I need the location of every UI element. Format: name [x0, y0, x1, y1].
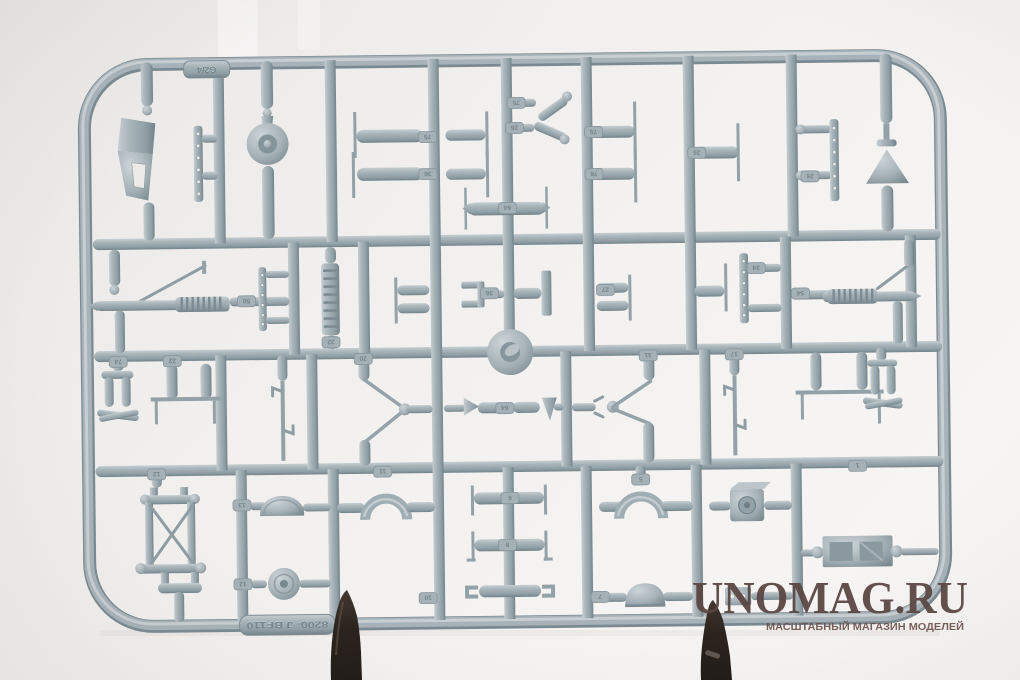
sprue-photo-canvas: 75 36 75 26 64 75 76 26 26 50 22 36 27 2… — [0, 0, 1020, 680]
photo-vignette — [0, 0, 1020, 680]
photo-model-sprue: 75 36 75 26 64 75 76 26 26 50 22 36 27 2… — [0, 0, 1020, 680]
